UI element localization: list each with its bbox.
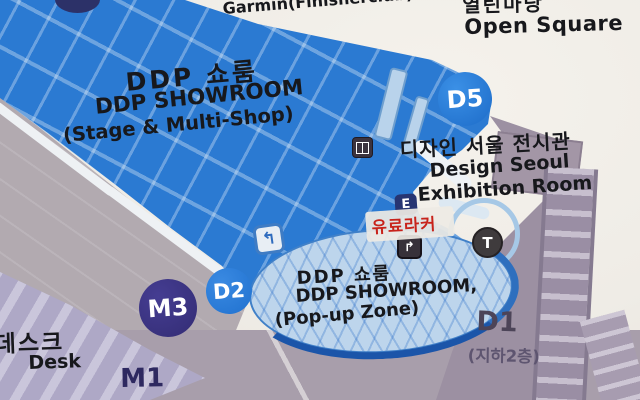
marker-m3-label: M3 [147,293,189,324]
toilet-badge-label: T [482,234,492,252]
paid-locker-label: 유료라커 [371,211,437,238]
open-square-en-label: Open Square [464,11,623,39]
garmin-finisherclub-label: Garmin(Finisherclub) [222,0,414,18]
toilet-badge: T [472,227,503,258]
marker-d5-label: D5 [446,84,484,114]
d1-floor-label: (지하2층) [468,342,541,367]
elevator-icon [352,137,373,158]
desk-en-label: Desk [28,350,81,374]
m1-code-label: M1 [120,363,164,394]
ddp-floor-map-photo: D5 D2 M3 E T ↰ ↱ Garmin(Finisherclub) 열린… [0,0,640,400]
marker-d2-label: D2 [212,278,246,304]
escalator-up-icon: ↰ [252,222,286,256]
d1-code-label: D1 [476,306,518,338]
